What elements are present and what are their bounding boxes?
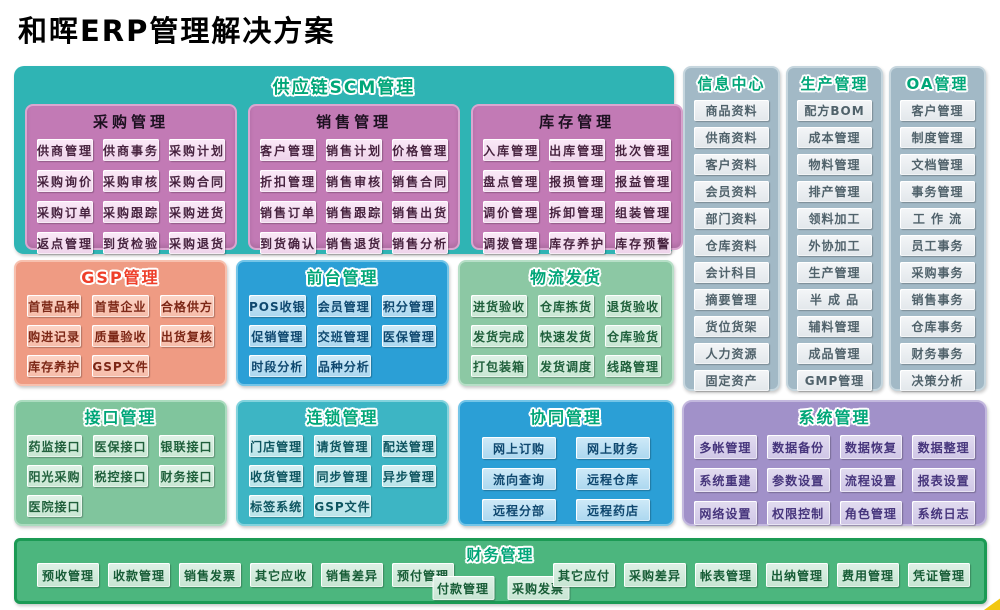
module-button[interactable]: 质量验收 xyxy=(92,325,148,347)
button-list-info-center: 商品资料供商资料客户资料会员资料部门资料仓库资料会计科目摘要管理货位货架人力资源… xyxy=(685,94,778,391)
module-button[interactable]: 销售跟踪 xyxy=(326,201,382,223)
module-button[interactable]: 数据整理 xyxy=(912,435,975,459)
module-button[interactable]: 成本管理 xyxy=(797,127,872,148)
module-button[interactable]: 库存养护 xyxy=(549,232,605,254)
module-button[interactable]: 数据备份 xyxy=(767,435,830,459)
module-button[interactable]: 采购合同 xyxy=(169,170,225,192)
module-button[interactable]: 员工事务 xyxy=(900,235,975,256)
module-button[interactable]: 线路管理 xyxy=(605,355,661,377)
button-list-oa: 客户管理制度管理文档管理事务管理工 作 流员工事务采购事务销售事务仓库事务财务事… xyxy=(891,94,984,391)
panel-title-system: 系统管理 xyxy=(684,402,985,427)
module-button[interactable]: 销售分析 xyxy=(392,232,448,254)
module-button[interactable]: 报益管理 xyxy=(615,170,671,192)
module-button[interactable]: 请货管理 xyxy=(314,435,370,457)
panel-front-desk: 前台管理 POS收银会员管理积分管理促销管理交班管理医保管理时段分析品种分析 xyxy=(236,260,449,386)
panel-production: 生产管理 配方BOM成本管理物料管理排产管理领料加工外协加工生产管理半 成 品辅… xyxy=(786,66,883,391)
module-button[interactable]: 决策分析 xyxy=(900,370,975,391)
module-button[interactable]: 库存预警 xyxy=(615,232,671,254)
button-grid-system: 多帐管理数据备份数据恢复数据整理系统重建参数设置流程设置报表设置网络设置权限控制… xyxy=(684,435,985,525)
module-button[interactable]: 供商管理 xyxy=(37,139,93,161)
module-button[interactable]: 人力资源 xyxy=(694,343,769,364)
module-button[interactable]: 药监接口 xyxy=(27,435,82,457)
module-button[interactable]: 打包装箱 xyxy=(471,355,527,377)
module-button[interactable]: 工 作 流 xyxy=(900,208,975,229)
module-button[interactable]: 部门资料 xyxy=(694,208,769,229)
module-button[interactable]: 医保接口 xyxy=(93,435,148,457)
panel-interface: 接口管理 药监接口医保接口银联接口阳光采购税控接口财务接口医院接口 xyxy=(14,400,227,526)
module-button[interactable]: 销售审核 xyxy=(326,170,382,192)
module-button[interactable]: 商品资料 xyxy=(694,100,769,121)
module-button[interactable]: 时段分析 xyxy=(249,355,306,377)
module-button[interactable]: 销售事务 xyxy=(900,289,975,310)
module-button[interactable]: 调价管理 xyxy=(483,201,539,223)
module-button[interactable]: 采购计划 xyxy=(169,139,225,161)
module-button[interactable]: 仓库验货 xyxy=(605,325,661,347)
module-button[interactable]: 系统日志 xyxy=(912,501,975,525)
module-button[interactable]: 收货管理 xyxy=(249,465,303,487)
panel-title-interface: 接口管理 xyxy=(16,402,225,427)
module-button[interactable]: 销售订单 xyxy=(260,201,316,223)
module-button[interactable]: 文档管理 xyxy=(900,154,975,175)
module-button[interactable]: 数据恢复 xyxy=(840,435,903,459)
panel-system: 系统管理 多帐管理数据备份数据恢复数据整理系统重建参数设置流程设置报表设置网络设… xyxy=(682,400,987,526)
button-grid-inventory: 入库管理出库管理批次管理盘点管理报损管理报益管理调价管理拆卸管理组装管理调拨管理… xyxy=(473,139,681,254)
module-button[interactable]: 调拨管理 xyxy=(483,232,539,254)
module-button[interactable]: 合格供方 xyxy=(160,295,214,317)
module-button[interactable]: GSP文件 xyxy=(92,355,148,377)
panel-gsp: GSP管理 首营品种首营企业合格供方购进记录质量验收出货复核库存养护GSP文件 xyxy=(14,260,227,386)
panel-title-finance: 财务管理 xyxy=(466,544,534,565)
panel-finance: 财务管理 预收管理收款管理销售发票其它应收销售差异预付管理 付款管理采购发票 其… xyxy=(14,538,987,604)
module-button[interactable]: 客户管理 xyxy=(260,139,316,161)
button-list-production: 配方BOM成本管理物料管理排产管理领料加工外协加工生产管理半 成 品辅料管理成品… xyxy=(788,94,881,391)
module-button[interactable]: 网络设置 xyxy=(694,501,757,525)
module-button[interactable]: 外协加工 xyxy=(797,235,872,256)
button-grid-interface: 药监接口医保接口银联接口阳光采购税控接口财务接口医院接口 xyxy=(16,435,225,517)
panel-chain: 连锁管理 门店管理请货管理配送管理收货管理同步管理异步管理标签系统GSP文件 xyxy=(236,400,449,526)
subpanel-inventory: 库存管理 入库管理出库管理批次管理盘点管理报损管理报益管理调价管理拆卸管理组装管… xyxy=(471,104,683,250)
module-button[interactable]: 远程药店 xyxy=(576,499,650,521)
panel-title-production: 生产管理 xyxy=(788,74,881,94)
panel-title-info-center: 信息中心 xyxy=(685,74,778,94)
module-button[interactable]: 到货检验 xyxy=(103,232,159,254)
module-button[interactable]: 医院接口 xyxy=(27,495,82,517)
module-button[interactable]: 配送管理 xyxy=(382,435,436,457)
module-button[interactable]: 出货复核 xyxy=(160,325,214,347)
module-button[interactable]: 积分管理 xyxy=(382,295,436,317)
module-button[interactable]: 流向查询 xyxy=(482,468,556,490)
module-button[interactable]: 流程设置 xyxy=(840,468,903,492)
module-button[interactable]: 出纳管理 xyxy=(766,563,828,587)
module-button[interactable]: 摘要管理 xyxy=(694,289,769,310)
button-grid-logistics: 进货验收仓库拣货退货验收发货完成快速发货仓库验货打包装箱发货调度线路管理 xyxy=(460,295,672,377)
module-button[interactable]: 首营企业 xyxy=(92,295,148,317)
module-button[interactable]: 采购跟踪 xyxy=(103,201,159,223)
module-button[interactable]: 其它应付 xyxy=(553,563,615,587)
module-button[interactable]: 事务管理 xyxy=(900,181,975,202)
module-button[interactable]: 采购进货 xyxy=(169,201,225,223)
module-button[interactable]: 销售退货 xyxy=(326,232,382,254)
module-button[interactable]: 凭证管理 xyxy=(908,563,970,587)
module-button[interactable]: 促销管理 xyxy=(249,325,306,347)
module-button[interactable]: 折扣管理 xyxy=(260,170,316,192)
module-button[interactable]: 采购订单 xyxy=(37,201,93,223)
module-button[interactable]: 采购退货 xyxy=(169,232,225,254)
module-button[interactable]: GSP文件 xyxy=(314,495,370,517)
module-button[interactable]: 银联接口 xyxy=(159,435,214,457)
module-button[interactable]: 其它应收 xyxy=(250,563,312,587)
panel-title-logistics: 物流发货 xyxy=(460,262,672,287)
module-button[interactable]: 会员管理 xyxy=(317,295,371,317)
module-button[interactable]: 价格管理 xyxy=(392,139,448,161)
module-button[interactable]: 仓库拣货 xyxy=(538,295,594,317)
module-button[interactable]: 财务接口 xyxy=(159,465,214,487)
panel-logistics: 物流发货 进货验收仓库拣货退货验收发货完成快速发货仓库验货打包装箱发货调度线路管… xyxy=(458,260,674,386)
subpanel-title-inventory: 库存管理 xyxy=(473,111,681,132)
module-button[interactable]: 仓库资料 xyxy=(694,235,769,256)
module-button[interactable]: 库存养护 xyxy=(27,355,81,377)
button-grid-sales: 客户管理销售计划价格管理折扣管理销售审核销售合同销售订单销售跟踪销售出货到货确认… xyxy=(250,139,458,254)
module-button[interactable]: 供商资料 xyxy=(694,127,769,148)
module-button[interactable]: 会员资料 xyxy=(694,181,769,202)
module-button[interactable]: 出库管理 xyxy=(549,139,605,161)
module-button[interactable]: 异步管理 xyxy=(382,465,436,487)
module-button[interactable]: 远程分部 xyxy=(482,499,556,521)
panel-title-oa: OA管理 xyxy=(891,74,984,94)
module-button[interactable]: 阳光采购 xyxy=(27,465,82,487)
panel-info-center: 信息中心 商品资料供商资料客户资料会员资料部门资料仓库资料会计科目摘要管理货位货… xyxy=(683,66,780,391)
module-button[interactable]: 入库管理 xyxy=(483,139,539,161)
module-button[interactable]: GMP管理 xyxy=(797,370,872,391)
module-button[interactable]: 帐表管理 xyxy=(695,563,757,587)
module-button[interactable]: 费用管理 xyxy=(837,563,899,587)
module-button[interactable]: 退货验收 xyxy=(605,295,661,317)
finance-left-buttons: 预收管理收款管理销售发票其它应收销售差异预付管理 xyxy=(37,563,454,587)
module-button[interactable]: 付款管理 xyxy=(432,576,494,600)
module-button[interactable]: 客户管理 xyxy=(900,100,975,121)
module-button[interactable]: 品种分析 xyxy=(317,355,371,377)
subpanel-purchase: 采购管理 供商管理供商事务采购计划采购询价采购审核采购合同采购订单采购跟踪采购进… xyxy=(25,104,237,250)
module-button[interactable]: 交班管理 xyxy=(317,325,371,347)
module-button[interactable]: 销售发票 xyxy=(179,563,241,587)
module-button[interactable]: 批次管理 xyxy=(615,139,671,161)
panel-title-gsp: GSP管理 xyxy=(16,262,225,287)
module-button[interactable]: 多帐管理 xyxy=(694,435,757,459)
module-button[interactable]: 发货调度 xyxy=(538,355,594,377)
module-button[interactable]: 货位货架 xyxy=(694,316,769,337)
panel-title-front-desk: 前台管理 xyxy=(238,262,447,287)
module-button[interactable]: POS收银 xyxy=(249,295,306,317)
module-button[interactable]: 网上财务 xyxy=(576,437,650,459)
subpanel-title-sales: 销售管理 xyxy=(250,111,458,132)
module-button[interactable]: 物料管理 xyxy=(797,154,872,175)
module-button[interactable]: 仓库事务 xyxy=(900,316,975,337)
module-button[interactable]: 收款管理 xyxy=(108,563,170,587)
corner-accent xyxy=(984,597,1000,610)
module-button[interactable]: 报损管理 xyxy=(549,170,605,192)
module-button[interactable]: 快速发货 xyxy=(538,325,594,347)
module-button[interactable]: 采购询价 xyxy=(37,170,93,192)
module-button[interactable]: 标签系统 xyxy=(249,495,303,517)
module-button[interactable]: 成品管理 xyxy=(797,343,872,364)
button-grid-front-desk: POS收银会员管理积分管理促销管理交班管理医保管理时段分析品种分析 xyxy=(238,295,447,377)
module-button[interactable]: 领料加工 xyxy=(797,208,872,229)
module-button[interactable]: 辅料管理 xyxy=(797,316,872,337)
module-button[interactable]: 发货完成 xyxy=(471,325,527,347)
module-button[interactable]: 拆卸管理 xyxy=(549,201,605,223)
module-button[interactable]: 固定资产 xyxy=(694,370,769,391)
panel-title-collaboration: 协同管理 xyxy=(460,402,672,427)
module-button[interactable]: 远程仓库 xyxy=(576,468,650,490)
module-button[interactable]: 财务事务 xyxy=(900,343,975,364)
scm-sections: 采购管理 供商管理供商事务采购计划采购询价采购审核采购合同采购订单采购跟踪采购进… xyxy=(14,98,674,250)
erp-solution-diagram: 和晖ERP管理解决方案 供应链SCM管理 采购管理 供商管理供商事务采购计划采购… xyxy=(0,0,1000,610)
panel-collaboration: 协同管理 网上订购网上财务流向查询远程仓库远程分部远程药店 xyxy=(458,400,674,526)
module-button[interactable]: 配方BOM xyxy=(797,100,872,121)
module-button[interactable]: 系统重建 xyxy=(694,468,757,492)
panel-title-scm: 供应链SCM管理 xyxy=(14,66,674,98)
module-button[interactable]: 角色管理 xyxy=(840,501,903,525)
module-button[interactable]: 权限控制 xyxy=(767,501,830,525)
module-button[interactable]: 参数设置 xyxy=(767,468,830,492)
module-button[interactable]: 销售出货 xyxy=(392,201,448,223)
module-button[interactable]: 采购事务 xyxy=(900,262,975,283)
panel-scm: 供应链SCM管理 采购管理 供商管理供商事务采购计划采购询价采购审核采购合同采购… xyxy=(14,66,674,254)
panel-oa: OA管理 客户管理制度管理文档管理事务管理工 作 流员工事务采购事务销售事务仓库… xyxy=(889,66,986,391)
finance-center-buttons: 付款管理采购发票 xyxy=(432,576,569,600)
button-grid-chain: 门店管理请货管理配送管理收货管理同步管理异步管理标签系统GSP文件 xyxy=(238,435,447,517)
module-button[interactable]: 销售差异 xyxy=(321,563,383,587)
module-button[interactable]: 采购差异 xyxy=(624,563,686,587)
module-button[interactable]: 门店管理 xyxy=(249,435,303,457)
module-button[interactable]: 半 成 品 xyxy=(797,289,872,310)
module-button[interactable]: 进货验收 xyxy=(471,295,527,317)
finance-right-buttons: 其它应付采购差异帐表管理出纳管理费用管理凭证管理 xyxy=(553,563,970,587)
module-button[interactable]: 销售计划 xyxy=(326,139,382,161)
module-button[interactable]: 到货确认 xyxy=(260,232,316,254)
module-button[interactable]: 供商事务 xyxy=(103,139,159,161)
module-button[interactable]: 返点管理 xyxy=(37,232,93,254)
module-button[interactable]: 组装管理 xyxy=(615,201,671,223)
module-button[interactable]: 网上订购 xyxy=(482,437,556,459)
subpanel-sales: 销售管理 客户管理销售计划价格管理折扣管理销售审核销售合同销售订单销售跟踪销售出… xyxy=(248,104,460,250)
module-button[interactable]: 采购审核 xyxy=(103,170,159,192)
module-button[interactable]: 盘点管理 xyxy=(483,170,539,192)
button-grid-collaboration: 网上订购网上财务流向查询远程仓库远程分部远程药店 xyxy=(460,437,672,521)
module-button[interactable]: 医保管理 xyxy=(382,325,436,347)
module-button[interactable]: 预收管理 xyxy=(37,563,99,587)
module-button[interactable]: 报表设置 xyxy=(912,468,975,492)
module-button[interactable]: 购进记录 xyxy=(27,325,81,347)
module-button[interactable]: 税控接口 xyxy=(93,465,148,487)
panel-title-chain: 连锁管理 xyxy=(238,402,447,427)
module-button[interactable]: 会计科目 xyxy=(694,262,769,283)
button-grid-purchase: 供商管理供商事务采购计划采购询价采购审核采购合同采购订单采购跟踪采购进货返点管理… xyxy=(27,139,235,254)
module-button[interactable]: 同步管理 xyxy=(314,465,370,487)
module-button[interactable]: 制度管理 xyxy=(900,127,975,148)
module-button[interactable]: 生产管理 xyxy=(797,262,872,283)
page-title: 和晖ERP管理解决方案 xyxy=(18,8,335,50)
button-grid-gsp: 首营品种首营企业合格供方购进记录质量验收出货复核库存养护GSP文件 xyxy=(16,295,225,377)
module-button[interactable]: 销售合同 xyxy=(392,170,448,192)
module-button[interactable]: 客户资料 xyxy=(694,154,769,175)
module-button[interactable]: 首营品种 xyxy=(27,295,81,317)
subpanel-title-purchase: 采购管理 xyxy=(27,111,235,132)
module-button[interactable]: 排产管理 xyxy=(797,181,872,202)
